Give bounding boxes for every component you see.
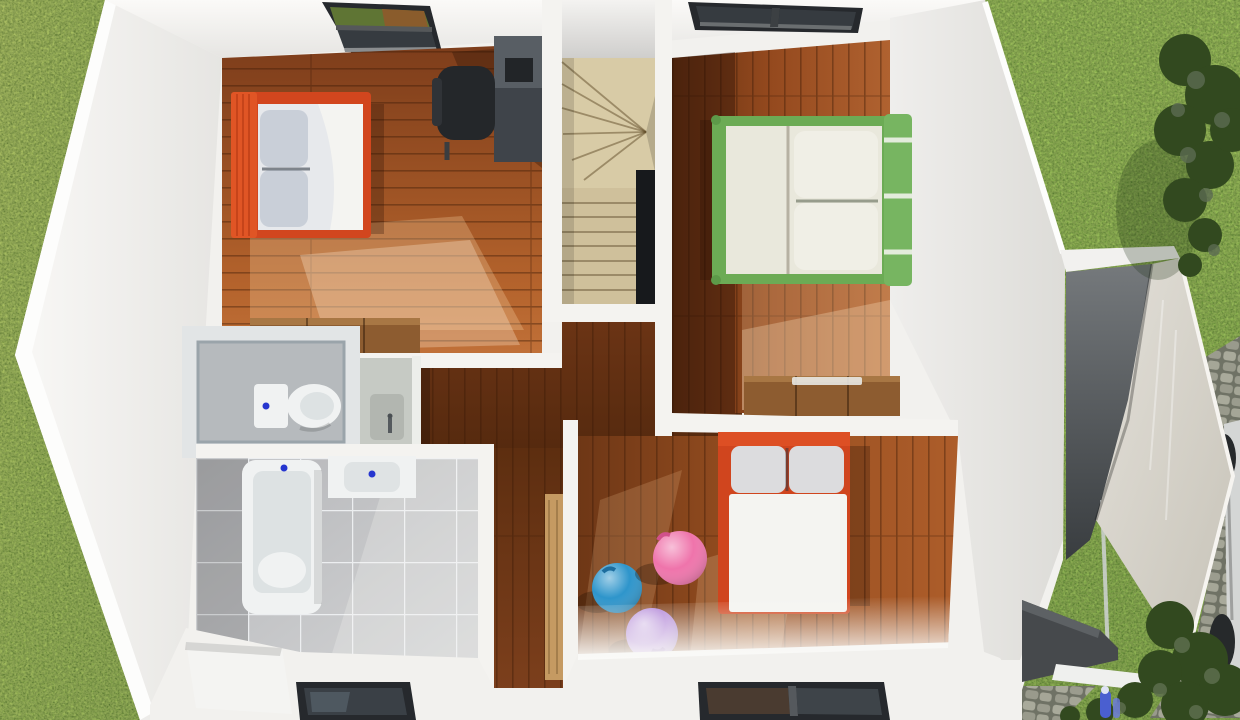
bedroom-3-floor-window <box>698 682 890 720</box>
dresser-1-top-edge <box>250 318 420 325</box>
bed-3-shadow <box>850 446 870 606</box>
vanity-faucet-head <box>388 414 393 419</box>
wall-bathroom-top <box>196 444 480 458</box>
bed-1 <box>231 92 384 238</box>
bed-2-corner-knob <box>711 115 721 125</box>
bed-2-pillow-bottom <box>794 203 878 270</box>
office-chair <box>437 66 495 140</box>
stair-left-shade <box>562 58 574 306</box>
office-chair-armrest <box>432 78 442 126</box>
stair-winders <box>562 58 655 188</box>
bed-3-headboard <box>718 432 850 446</box>
monitor <box>505 58 533 82</box>
garden-figure-head <box>1101 686 1109 694</box>
bathtub-drain <box>281 465 288 472</box>
dresser-bedroom-2 <box>744 376 900 416</box>
bed3-window-glass-left <box>706 688 790 714</box>
bed-3 <box>718 432 870 614</box>
bed-2 <box>700 114 912 286</box>
toilet <box>254 384 341 430</box>
bathtub-basin-slope <box>258 552 306 588</box>
dresser-2-tray <box>792 377 862 385</box>
bed-2-corner-knob <box>711 275 721 285</box>
floor-plan-canvas <box>0 0 1240 720</box>
vanity <box>360 356 421 452</box>
skylight-1-glass-upper-wood <box>382 9 428 27</box>
garden-figure-arm <box>1113 698 1120 718</box>
bed-3-duvet <box>729 494 847 612</box>
bed-3-pillow-left <box>731 446 786 493</box>
bed-2-pillow-top <box>794 131 878 198</box>
bath-window-reflection <box>310 692 350 712</box>
wall-stairs-right <box>655 0 672 462</box>
toilet-flush-button <box>263 403 270 410</box>
bathtub-shadow <box>314 470 322 604</box>
wall-stairs-left <box>542 0 562 322</box>
toilet-seat <box>300 392 334 420</box>
skylight-1-glass-lower <box>337 29 436 48</box>
stairwell-void <box>636 170 655 306</box>
bed-1-pillow-top <box>260 110 308 167</box>
bathroom <box>196 444 480 668</box>
bedroom-1 <box>222 36 542 358</box>
bathroom-sink <box>328 456 416 498</box>
gym-ball-pink-shade <box>653 531 707 585</box>
wall-stairs-bottom <box>562 304 655 322</box>
bed-1-pillow-bottom <box>260 170 308 227</box>
bed-3-pillow-right <box>789 446 844 493</box>
corridor-door-panel <box>545 494 565 680</box>
bed3-window-glass-right <box>796 688 882 715</box>
vanity-faucet <box>388 418 392 433</box>
wall-vanity-hall <box>412 356 421 452</box>
corridor <box>478 420 578 720</box>
vanity-basin <box>370 394 404 440</box>
floor-plan-render <box>0 0 1240 720</box>
step-ledge <box>185 642 292 714</box>
bathtub <box>242 460 322 614</box>
bed-1-headboard <box>231 92 257 238</box>
toilet-tank <box>254 384 288 428</box>
garden-figure-body <box>1100 690 1111 718</box>
bathroom-floor-window <box>296 682 416 720</box>
sink-drain <box>369 471 376 478</box>
